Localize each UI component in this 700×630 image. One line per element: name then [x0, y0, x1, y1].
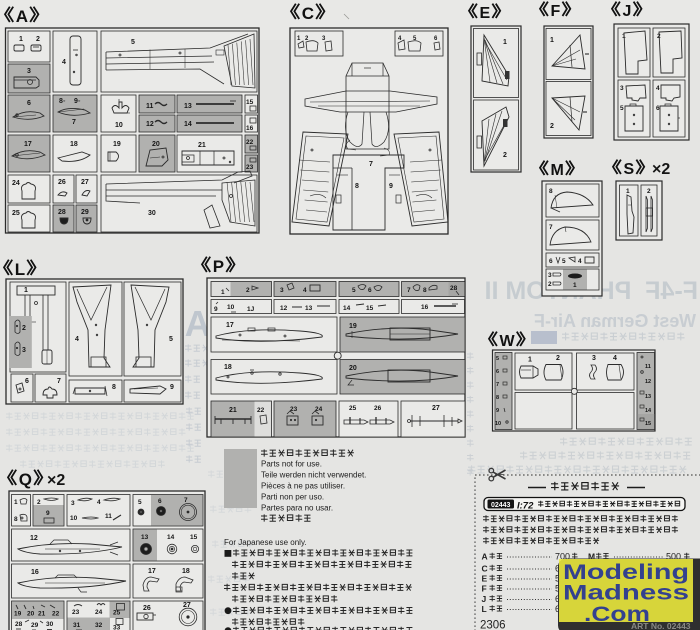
svg-text:Partes para no usar.: Partes para no usar. — [261, 504, 333, 513]
svg-text:×2: ×2 — [652, 161, 670, 178]
svg-text:2: 2 — [556, 355, 560, 362]
svg-text:15: 15 — [366, 305, 374, 312]
svg-text:10: 10 — [495, 421, 501, 427]
svg-text:9: 9 — [496, 408, 499, 414]
svg-text:6: 6 — [158, 498, 162, 505]
svg-text:21: 21 — [38, 611, 46, 618]
svg-text:J: J — [622, 3, 631, 20]
svg-text:F: F — [482, 584, 487, 594]
svg-text:18: 18 — [70, 141, 78, 148]
svg-text:8: 8 — [549, 188, 553, 195]
svg-text:15: 15 — [246, 99, 254, 106]
svg-text:C: C — [482, 564, 488, 574]
svg-text:W: W — [499, 333, 515, 350]
svg-text:1: 1 — [626, 188, 630, 195]
svg-text:6: 6 — [27, 100, 31, 107]
svg-text:13: 13 — [141, 534, 149, 541]
svg-text:11: 11 — [105, 513, 112, 520]
svg-text:23: 23 — [246, 164, 254, 171]
svg-text:Q: Q — [19, 470, 32, 489]
svg-text:1: 1 — [550, 37, 554, 44]
svg-text:31: 31 — [73, 622, 81, 629]
svg-text:14: 14 — [645, 408, 652, 414]
svg-text:12: 12 — [146, 121, 154, 128]
svg-text:A: A — [482, 552, 488, 562]
svg-text:23: 23 — [72, 609, 80, 616]
svg-text:18: 18 — [182, 568, 190, 575]
svg-text:7: 7 — [72, 119, 76, 126]
svg-text:7: 7 — [549, 224, 553, 231]
svg-text:15: 15 — [645, 421, 651, 427]
svg-text:E: E — [482, 574, 488, 584]
svg-text:Parti non per uso.: Parti non per uso. — [261, 493, 324, 502]
svg-text:20: 20 — [152, 141, 160, 148]
svg-text:11: 11 — [645, 364, 651, 370]
svg-text:26: 26 — [58, 179, 66, 186]
svg-text:×2: ×2 — [47, 472, 65, 489]
svg-text:12: 12 — [645, 379, 651, 385]
svg-text:1: 1 — [19, 36, 23, 43]
svg-text:12: 12 — [30, 535, 38, 542]
svg-text:2: 2 — [647, 188, 651, 195]
svg-text:3: 3 — [27, 68, 31, 75]
svg-text:14: 14 — [184, 121, 192, 128]
svg-text:5: 5 — [352, 287, 356, 294]
svg-text:2: 2 — [246, 287, 250, 294]
svg-text:26: 26 — [143, 605, 151, 612]
svg-text:2: 2 — [548, 281, 552, 288]
svg-text:19: 19 — [349, 323, 357, 330]
svg-text:5: 5 — [169, 336, 173, 343]
svg-text:M: M — [550, 162, 563, 179]
svg-text:1: 1 — [221, 289, 225, 296]
svg-text:9◦: 9◦ — [74, 98, 80, 105]
svg-text:25: 25 — [349, 405, 357, 412]
svg-text:8: 8 — [112, 384, 116, 391]
svg-text:ART No. 02443: ART No. 02443 — [631, 621, 691, 630]
svg-text:4: 4 — [97, 499, 101, 506]
svg-text:19: 19 — [14, 611, 22, 618]
svg-text:16: 16 — [31, 569, 39, 576]
svg-text:1: 1 — [528, 357, 532, 364]
svg-text:24: 24 — [95, 609, 103, 616]
svg-text:Parts not for use.: Parts not for use. — [261, 460, 322, 469]
svg-text:24: 24 — [12, 180, 20, 187]
svg-text:27: 27 — [81, 179, 89, 186]
svg-text:10: 10 — [227, 304, 235, 311]
svg-text:8◦: 8◦ — [59, 98, 65, 105]
svg-text:8: 8 — [355, 183, 359, 190]
svg-text:1: 1 — [503, 39, 507, 46]
svg-text:13: 13 — [645, 394, 651, 400]
svg-text:1: 1 — [14, 499, 18, 506]
svg-text:4: 4 — [75, 336, 79, 343]
svg-text:28: 28 — [450, 285, 458, 292]
svg-text:16: 16 — [246, 125, 254, 132]
svg-text:11: 11 — [146, 103, 154, 110]
svg-text:13: 13 — [305, 305, 313, 312]
svg-text:P: P — [213, 257, 224, 276]
svg-text:4: 4 — [303, 287, 307, 294]
svg-text:7: 7 — [184, 497, 188, 504]
svg-text:22: 22 — [52, 611, 60, 618]
svg-text:2: 2 — [550, 123, 554, 130]
svg-text:14: 14 — [167, 534, 175, 541]
svg-text:15: 15 — [190, 534, 198, 541]
svg-text:1J: 1J — [247, 306, 255, 313]
svg-text:Madness: Madness — [563, 581, 689, 605]
svg-text:26: 26 — [374, 405, 382, 412]
svg-text:8: 8 — [14, 516, 18, 523]
svg-text:20: 20 — [27, 611, 35, 618]
svg-text:7: 7 — [57, 378, 61, 385]
svg-text:C: C — [302, 4, 314, 23]
svg-text:J: J — [482, 594, 487, 604]
svg-text:9: 9 — [214, 306, 218, 313]
svg-text:L: L — [15, 260, 25, 279]
svg-text:21: 21 — [229, 407, 237, 414]
svg-text:28: 28 — [58, 209, 66, 216]
svg-text:2: 2 — [22, 325, 26, 332]
svg-text:28: 28 — [15, 621, 23, 628]
svg-text:S: S — [623, 161, 634, 178]
svg-text:5: 5 — [496, 356, 499, 362]
svg-text:17: 17 — [148, 568, 156, 575]
svg-text:22: 22 — [257, 407, 265, 414]
svg-text:20: 20 — [349, 365, 357, 372]
svg-text:2: 2 — [503, 152, 507, 159]
svg-text:3: 3 — [548, 272, 552, 279]
svg-text:9: 9 — [170, 384, 174, 391]
svg-text:9: 9 — [46, 510, 50, 517]
svg-text:Pièces à ne pas utiliser.: Pièces à ne pas utiliser. — [261, 482, 345, 491]
svg-text:L: L — [482, 604, 487, 614]
svg-text:29: 29 — [81, 209, 89, 216]
svg-text:6: 6 — [496, 369, 499, 375]
svg-text:6: 6 — [549, 258, 553, 265]
svg-text:22: 22 — [246, 139, 254, 146]
svg-text:4: 4 — [578, 258, 582, 265]
svg-text:5: 5 — [131, 39, 135, 46]
svg-text:8: 8 — [496, 395, 499, 401]
svg-text:2: 2 — [36, 36, 40, 43]
svg-text:5: 5 — [138, 499, 142, 506]
svg-text:25: 25 — [113, 610, 121, 617]
svg-text:7: 7 — [369, 161, 373, 168]
svg-text:West German Air-F: West German Air-F — [534, 311, 696, 331]
svg-text:17: 17 — [24, 141, 32, 148]
svg-text:3: 3 — [22, 347, 26, 354]
svg-text:1: 1 — [24, 287, 28, 294]
svg-text:A: A — [16, 7, 28, 26]
svg-text:8: 8 — [423, 287, 427, 294]
svg-text:For Japanese use only.: For Japanese use only. — [224, 538, 307, 547]
svg-text:4: 4 — [613, 355, 617, 362]
svg-text:6: 6 — [656, 105, 660, 112]
svg-text:29: 29 — [31, 622, 39, 629]
svg-text:25: 25 — [12, 210, 20, 217]
svg-text:32: 32 — [95, 622, 103, 629]
svg-text:3: 3 — [71, 500, 75, 507]
svg-text:18: 18 — [224, 364, 232, 371]
svg-text:30: 30 — [148, 210, 156, 217]
svg-text:3: 3 — [620, 85, 624, 92]
svg-text:2306: 2306 — [480, 620, 506, 630]
svg-text:16: 16 — [421, 304, 429, 311]
svg-text:30: 30 — [46, 621, 54, 628]
svg-text:3: 3 — [280, 287, 284, 294]
svg-text:1: 1 — [573, 282, 577, 289]
svg-text:9: 9 — [389, 183, 393, 190]
svg-text:Teile werden nicht verwendet.: Teile werden nicht verwendet. — [261, 471, 366, 480]
svg-text:7: 7 — [407, 287, 411, 294]
svg-text:02443: 02443 — [491, 502, 511, 509]
svg-text:19: 19 — [113, 141, 121, 148]
svg-text:E: E — [479, 5, 490, 22]
svg-text:5: 5 — [620, 105, 624, 112]
svg-text:4: 4 — [62, 59, 66, 66]
svg-text:10: 10 — [115, 122, 123, 129]
svg-text:6: 6 — [368, 287, 372, 294]
svg-text:21: 21 — [198, 142, 206, 149]
svg-text:I:72: I:72 — [517, 501, 534, 512]
svg-text:27: 27 — [432, 405, 440, 412]
svg-text:4: 4 — [656, 85, 660, 92]
svg-text:17: 17 — [226, 322, 234, 329]
svg-text:F: F — [550, 3, 560, 20]
svg-text:6: 6 — [25, 378, 29, 385]
svg-text:33: 33 — [113, 625, 121, 630]
svg-text:12: 12 — [280, 305, 288, 312]
svg-text:7: 7 — [496, 382, 499, 388]
svg-text:13: 13 — [184, 103, 192, 110]
svg-text:5: 5 — [562, 258, 566, 265]
svg-text:2: 2 — [37, 499, 41, 506]
svg-text:14: 14 — [343, 305, 351, 312]
svg-text:10: 10 — [70, 515, 78, 522]
svg-text:3: 3 — [592, 355, 596, 362]
